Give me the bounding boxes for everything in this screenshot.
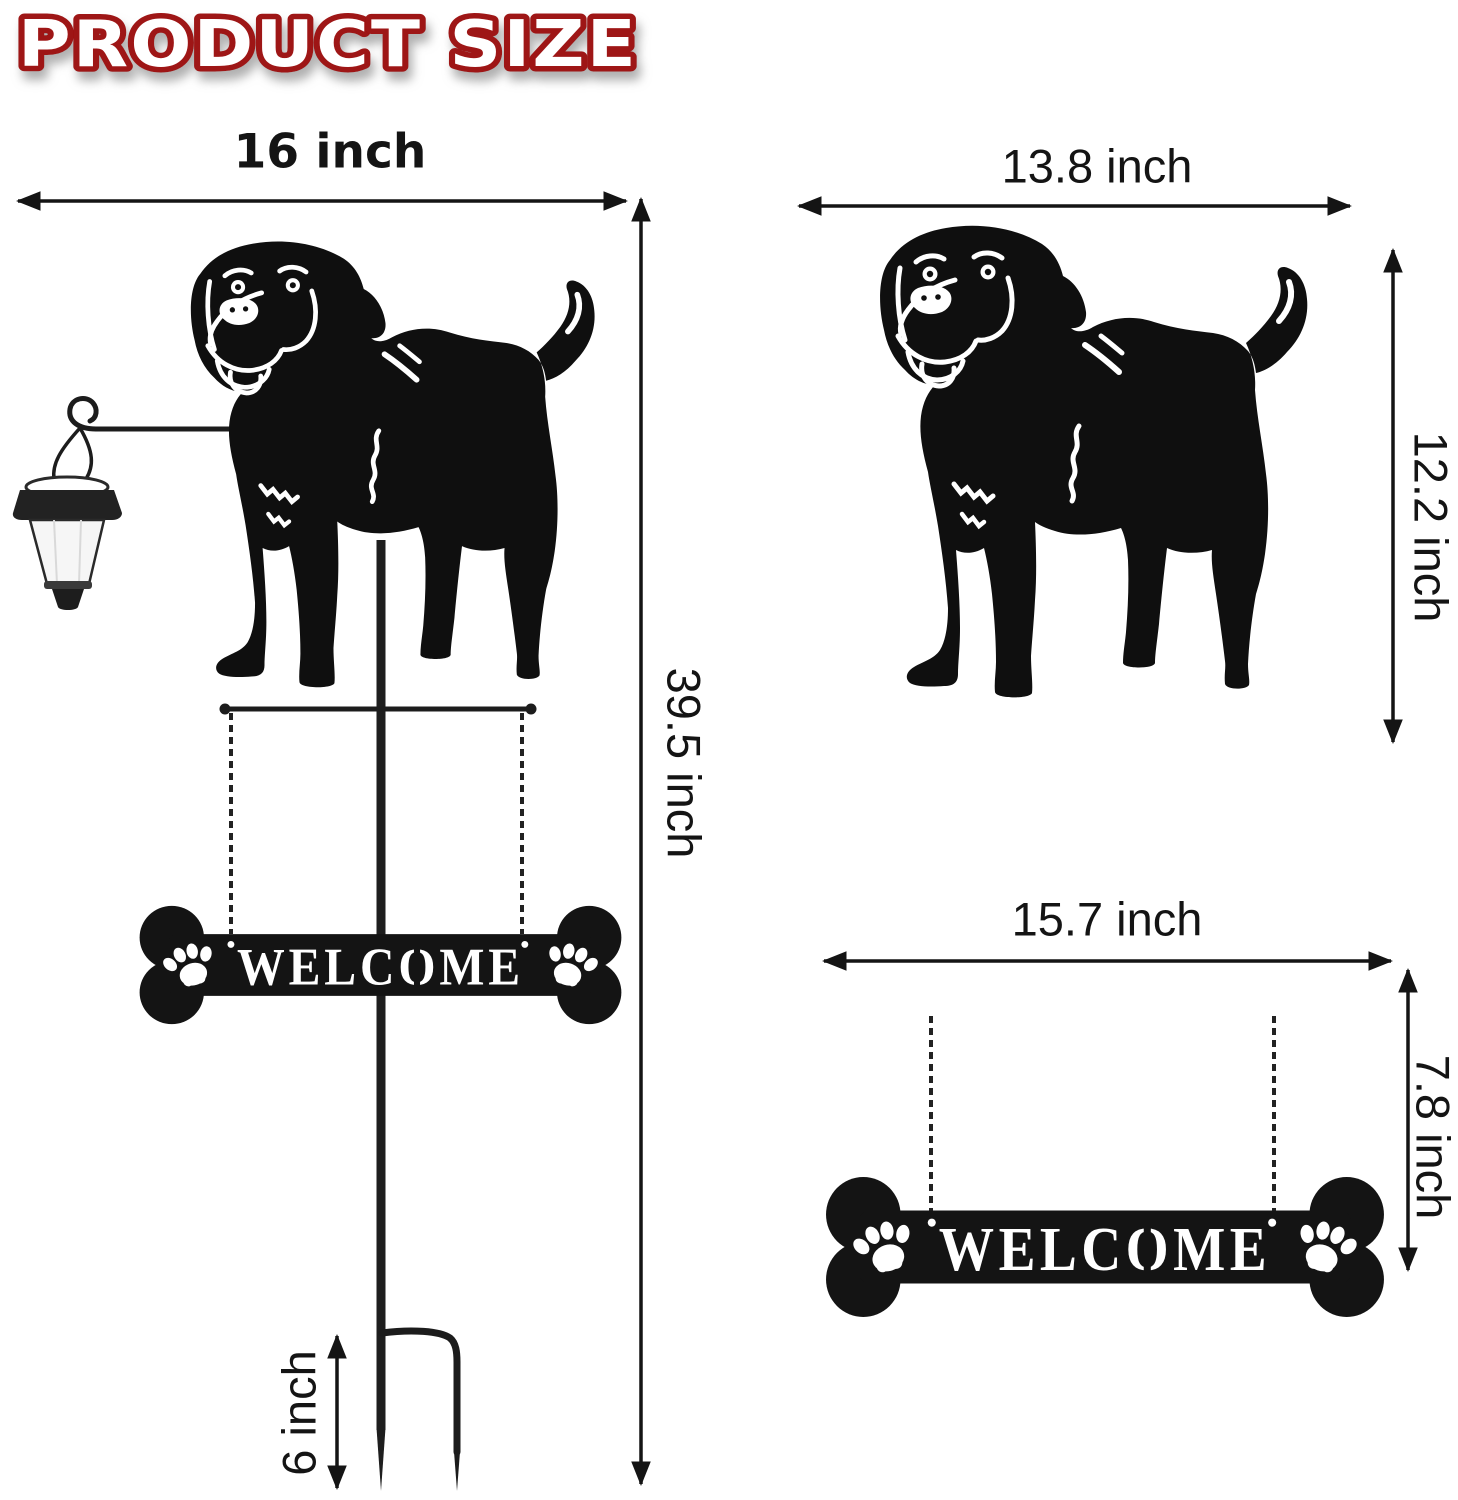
dog-silhouette-full-product bbox=[191, 242, 595, 688]
dim-sign-width-label: 15.7 inch bbox=[1012, 893, 1203, 946]
dim-sign-height-label: 7.8 inch bbox=[1407, 1055, 1458, 1220]
sign-chains-detail bbox=[931, 1016, 1274, 1218]
dim-stake-depth-label: 6 inch bbox=[273, 1350, 326, 1475]
dim-dog-height-label: 12.2 inch bbox=[1405, 432, 1458, 623]
solar-lantern bbox=[13, 477, 122, 610]
ground-stake-pole bbox=[377, 540, 386, 1491]
lantern-hook-arm bbox=[54, 398, 233, 479]
page-title: PRODUCT SIZE bbox=[18, 8, 638, 82]
bone-welcome-sign-detail bbox=[826, 1177, 1384, 1317]
product-size-diagram: WELCOME bbox=[0, 0, 1458, 1500]
diagram-svg: WELCOME bbox=[0, 0, 1458, 1500]
dim-full-height-label: 39.5 inch bbox=[658, 668, 711, 859]
dog-silhouette-detail bbox=[880, 226, 1307, 698]
stake-fork bbox=[382, 1331, 461, 1491]
dim-full-width-label: 16 inch bbox=[234, 125, 427, 180]
dim-dog-width-label: 13.8 inch bbox=[1002, 140, 1193, 193]
